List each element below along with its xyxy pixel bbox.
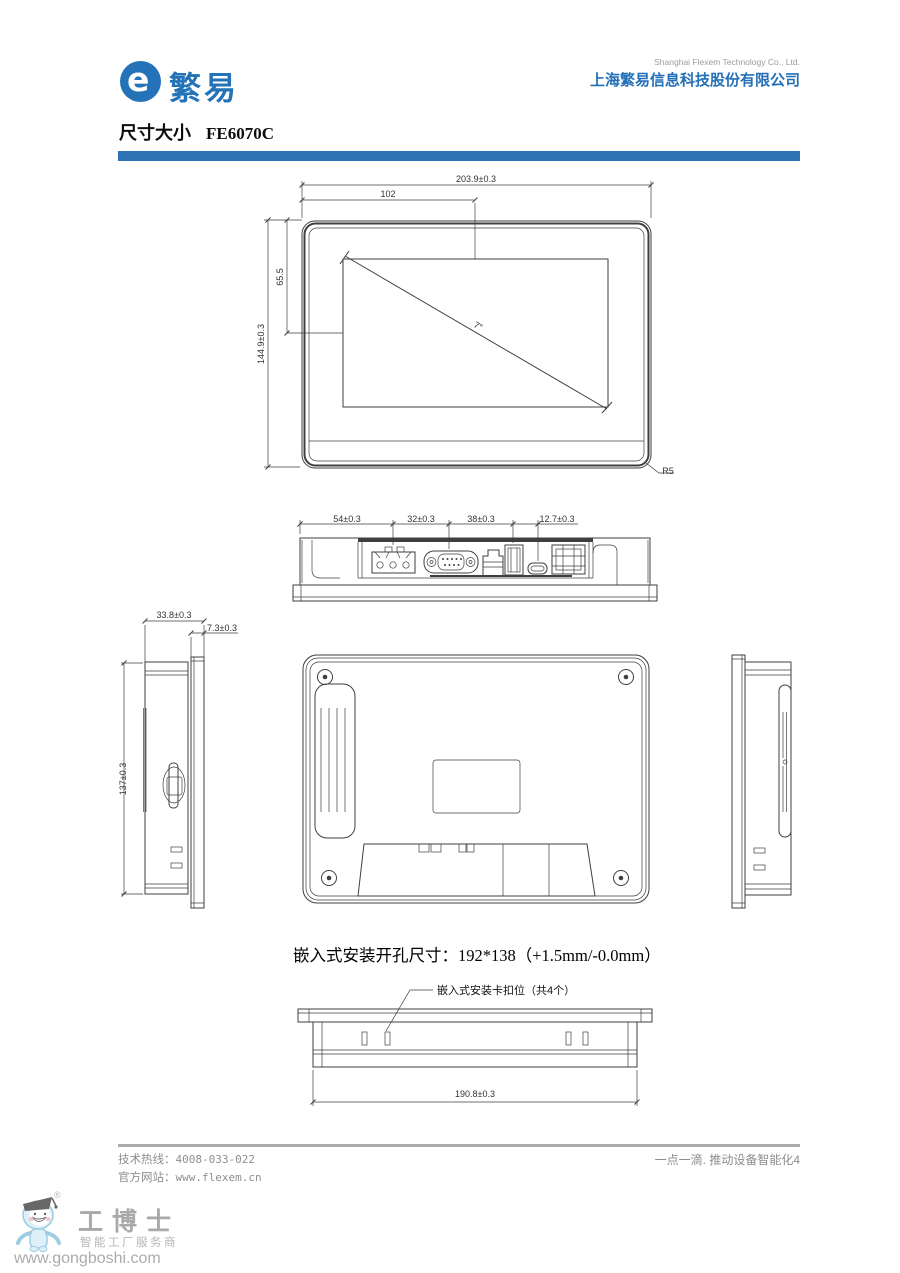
dimension-ticks xyxy=(122,183,654,1105)
dim-screen-offset-y: 65.5 xyxy=(275,268,285,286)
company-name-chinese: 上海繁易信息科技股份有限公司 xyxy=(590,69,800,90)
mount-clip-label: 嵌入式安装卡扣位（共4个） xyxy=(437,982,575,998)
dim-front-height: 144.9±0.3 xyxy=(256,324,266,364)
gongboshi-watermark: ® 工博士 智能工厂服务商 www.gongboshi.com xyxy=(12,1190,242,1270)
back-view xyxy=(303,655,649,903)
dim-port-d: 12.7±0.3 xyxy=(540,514,575,524)
dim-corner-radius: R5 xyxy=(662,466,674,476)
hotline-row: 技术热线：4008-033-022 xyxy=(118,1151,255,1167)
dim-front-width: 203.9±0.3 xyxy=(456,174,496,184)
footer-slogan: 一点一滴. 推动设备智能化4 xyxy=(655,1151,800,1168)
watermark-url: www.gongboshi.com xyxy=(14,1250,161,1268)
website-label: 官方网站： xyxy=(118,1172,176,1184)
dim-side-depth: 33.8±0.3 xyxy=(157,610,192,620)
registered-mark: ® xyxy=(54,1190,61,1200)
screw-holes xyxy=(318,670,634,886)
section-title: 尺寸大小 xyxy=(119,123,191,143)
cutout-size-caption: 嵌入式安装开孔尺寸：192*138（+1.5mm/-0.0mm） xyxy=(293,942,661,966)
website-url[interactable]: www.flexem.cn xyxy=(176,1171,262,1184)
dim-screen-offset-x: 102 xyxy=(380,189,395,199)
front-view xyxy=(264,181,674,473)
datasheet-page: e 繁易 Shanghai Flexem Technology Co., Ltd… xyxy=(0,0,900,1273)
dim-side-height: 137±0.3 xyxy=(118,763,128,795)
dim-mount-width: 190.8±0.3 xyxy=(455,1089,495,1099)
hotline-label: 技术热线： xyxy=(118,1154,176,1166)
dim-bezel-depth: 7.3±0.3 xyxy=(207,623,237,633)
left-side-view xyxy=(121,621,238,908)
bottom-view xyxy=(293,520,657,601)
gongboshi-mascot-icon xyxy=(12,1190,74,1252)
brand-name: 繁易 xyxy=(169,63,239,109)
watermark-name: 工博士 xyxy=(78,1202,180,1238)
model-number: FE6070C xyxy=(206,124,274,143)
title-divider-bar xyxy=(118,151,800,161)
footer-divider xyxy=(118,1144,800,1147)
company-name-english: Shanghai Flexem Technology Co., Ltd. xyxy=(654,57,800,67)
dim-port-a: 54±0.3 xyxy=(333,514,360,524)
hotline-number: 4008-033-022 xyxy=(176,1153,255,1166)
flexem-logo-icon: e xyxy=(120,61,161,102)
watermark-tagline: 智能工厂服务商 xyxy=(80,1234,178,1250)
dim-port-b: 32±0.3 xyxy=(407,514,434,524)
logo-letter: e xyxy=(127,60,149,99)
clip-leader-line xyxy=(386,990,433,1031)
right-side-view xyxy=(732,655,791,908)
website-row: 官方网站：www.flexem.cn xyxy=(118,1169,262,1185)
page-title: 尺寸大小FE6070C xyxy=(119,119,274,145)
technical-drawing xyxy=(0,165,900,1110)
dim-port-c: 38±0.3 xyxy=(467,514,494,524)
